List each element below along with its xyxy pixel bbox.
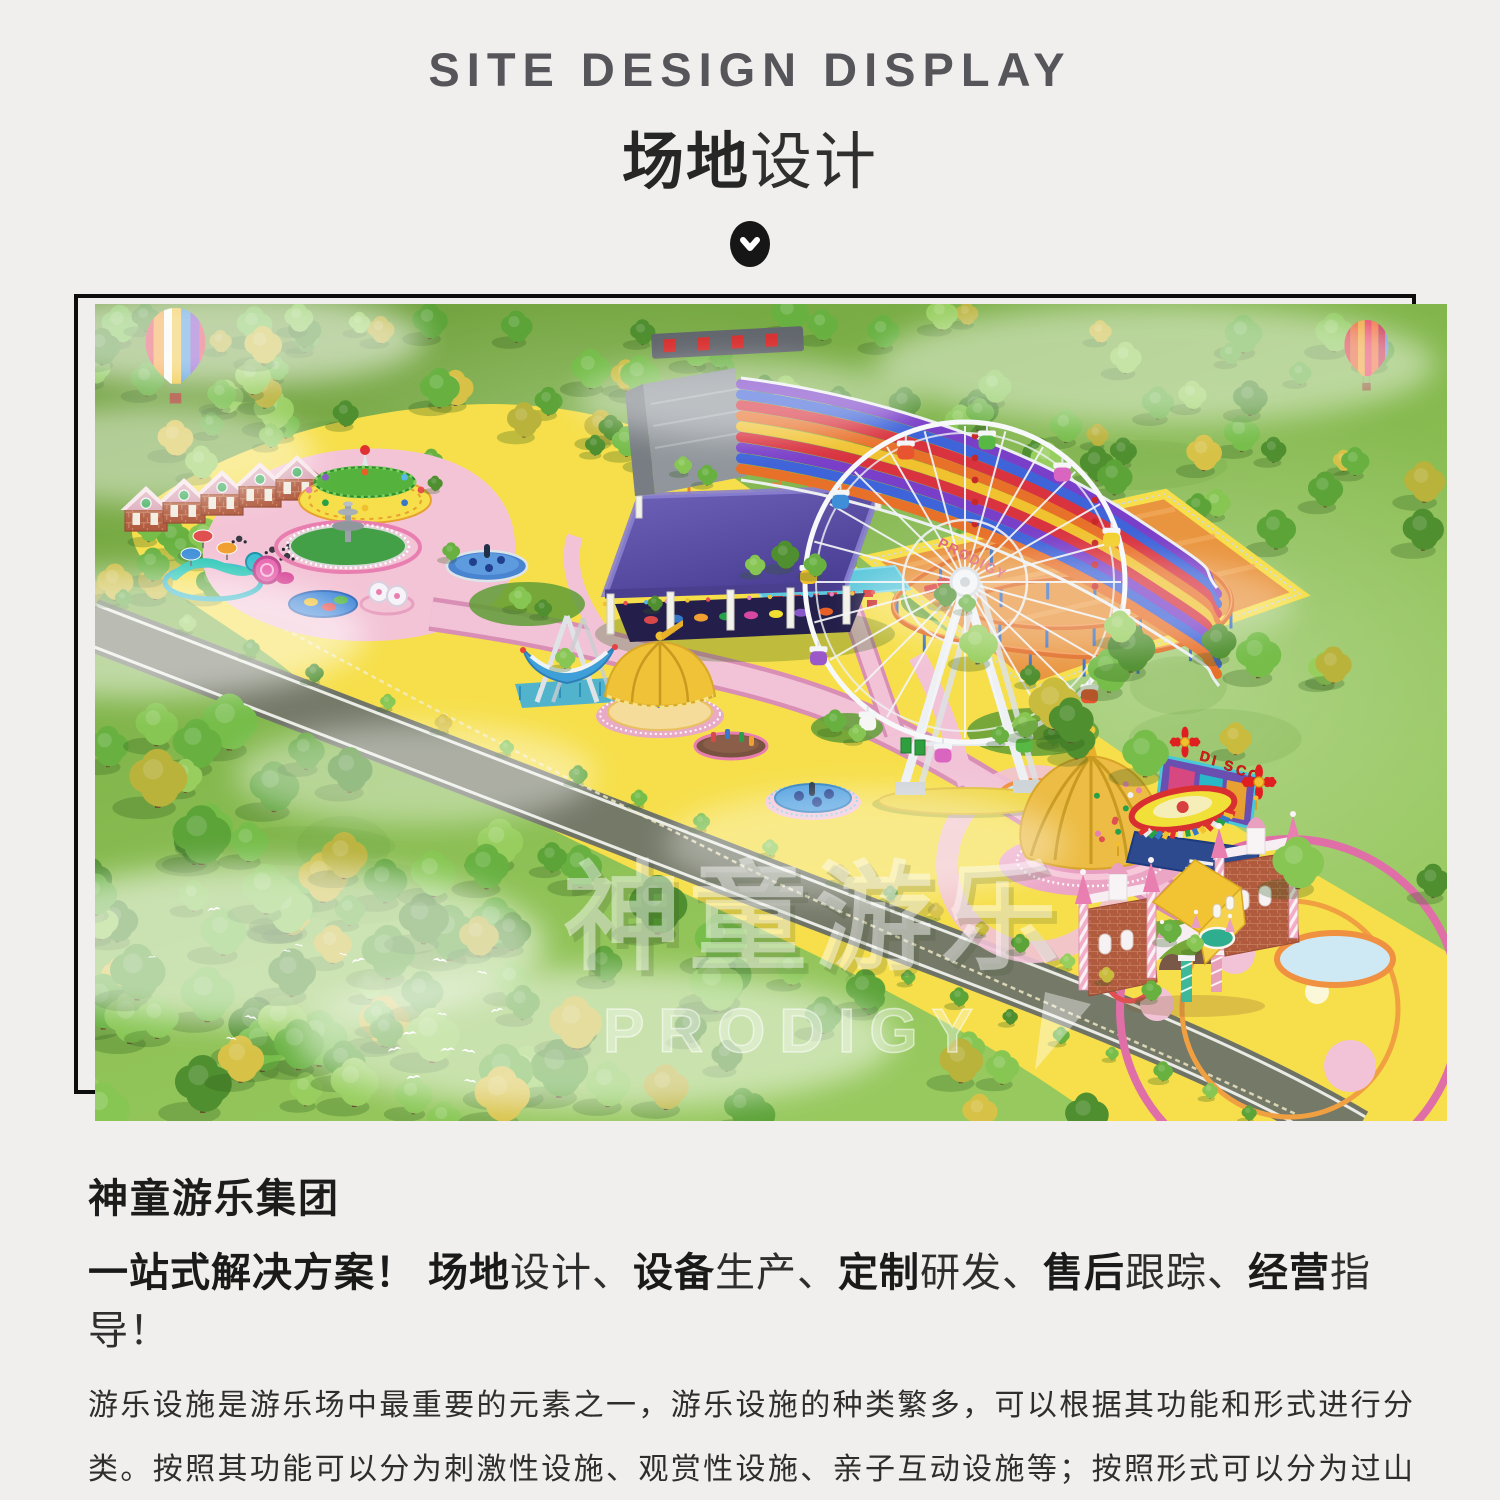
section-header: SITE DESIGN DISPLAY 场地设计 — [0, 0, 1500, 267]
section-title-zh: 场地设计 — [0, 111, 1500, 201]
tagline-segment: 研发、 — [920, 1251, 1043, 1295]
scroll-down-button[interactable] — [730, 221, 770, 267]
park-aerial-rendering: PRODIGY — [95, 304, 1447, 1121]
title-zh-normal: 设计 — [750, 128, 878, 197]
title-zh-strong: 场地 — [622, 128, 750, 197]
tagline-segment: 设计、 — [510, 1251, 633, 1295]
company-heading: 神童游乐集团 — [88, 1166, 1414, 1224]
site-design-figure: PRODIGY — [0, 294, 1500, 1121]
tagline: 一站式解决方案！场地设计、设备生产、定制研发、售后跟踪、经营指导！ — [88, 1240, 1414, 1356]
section-title-en: SITE DESIGN DISPLAY — [0, 42, 1500, 97]
chevron-down-icon — [738, 232, 762, 256]
tagline-segment: 售后 — [1043, 1251, 1125, 1295]
tagline-segment: 一站式解决方案！ — [88, 1251, 416, 1295]
tagline-segment: 生产、 — [715, 1251, 838, 1295]
tagline-segment: 场地 — [428, 1251, 510, 1295]
tagline-segment: 跟踪、 — [1125, 1251, 1248, 1295]
tagline-segment: 设备 — [633, 1251, 715, 1295]
watermark-zh: 神童游乐 — [563, 849, 1067, 987]
tagline-segment: 定制 — [838, 1251, 920, 1295]
intro-section: 神童游乐集团 一站式解决方案！场地设计、设备生产、定制研发、售后跟踪、经营指导！… — [88, 1166, 1414, 1500]
watermark-en: PRODIGY — [603, 997, 987, 1066]
description-paragraph: 游乐设施是游乐场中最重要的元素之一，游乐设施的种类繁多，可以根据其功能和形式进行… — [88, 1374, 1414, 1500]
park-scene: PRODIGY — [95, 304, 1447, 1121]
tagline-segment: 经营 — [1248, 1251, 1330, 1295]
